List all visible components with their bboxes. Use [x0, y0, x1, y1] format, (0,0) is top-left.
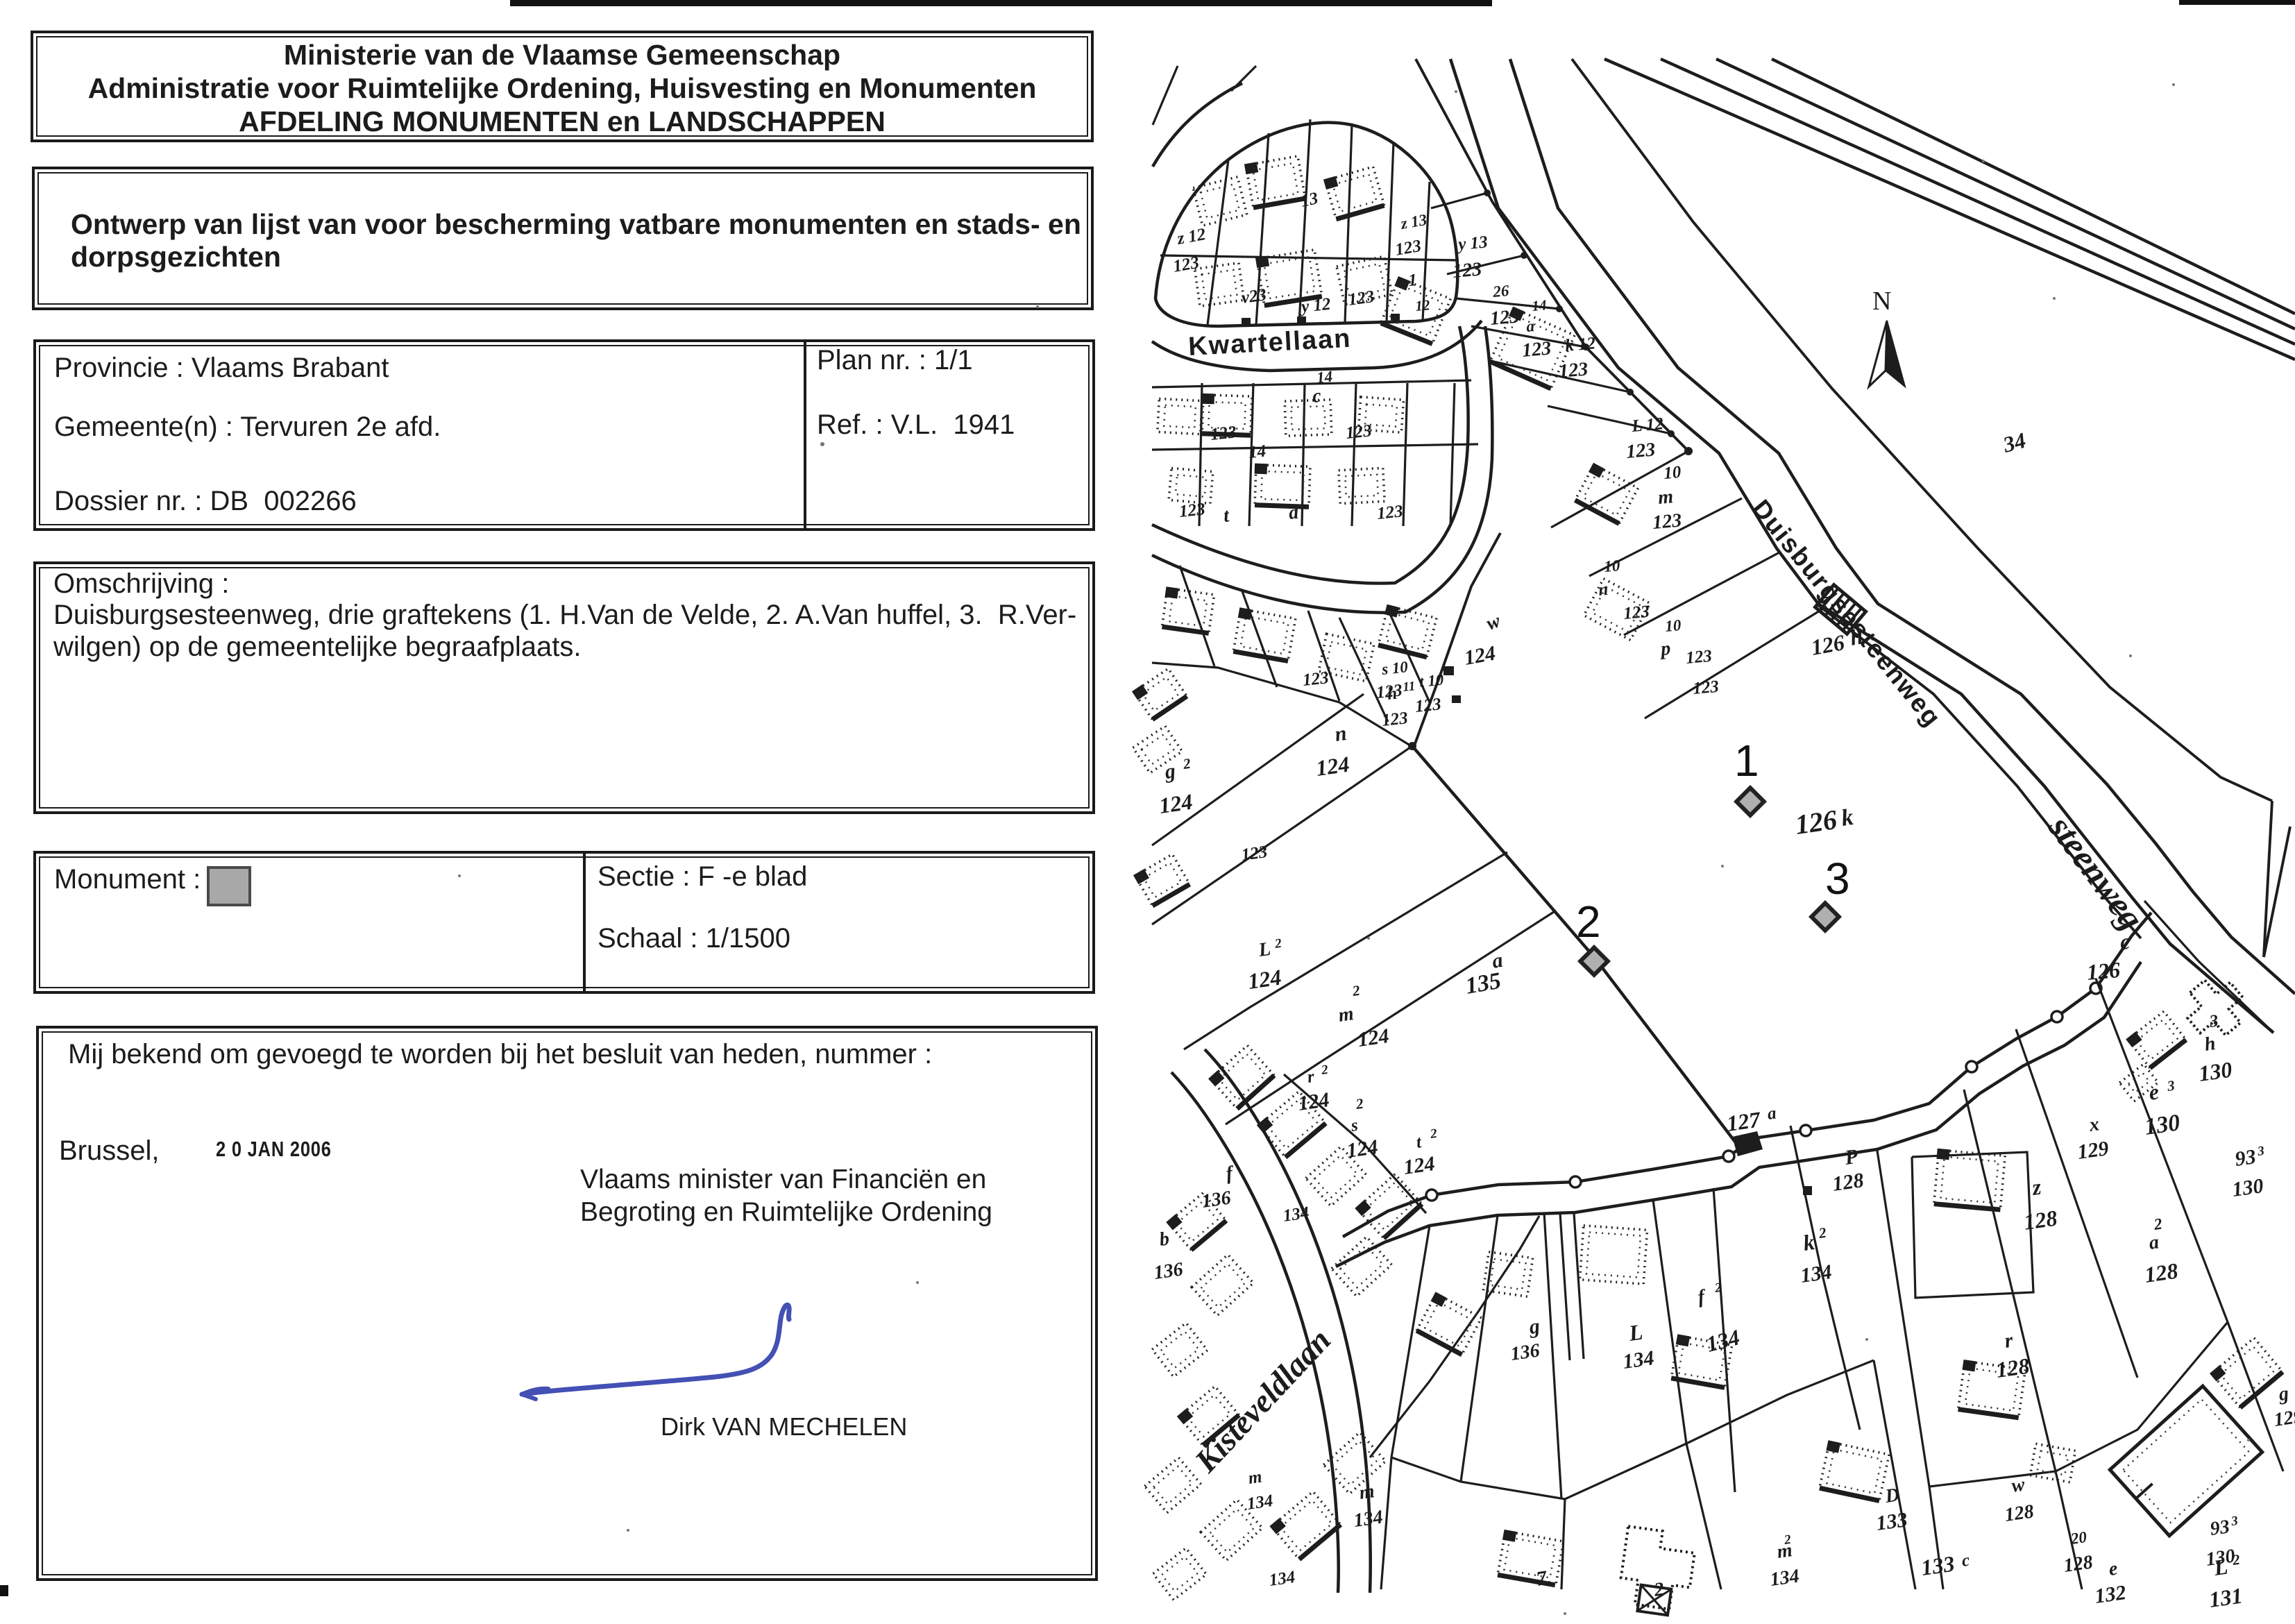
svg-text:26: 26 — [1491, 282, 1510, 301]
svg-text:13: 13 — [1299, 189, 1320, 211]
svg-text:L: L — [1627, 1319, 1644, 1346]
svg-text:h: h — [2203, 1033, 2217, 1056]
svg-text:Kwartellaan: Kwartellaan — [1187, 324, 1352, 362]
svg-text:3: 3 — [2230, 1514, 2239, 1529]
svg-text:x: x — [2087, 1113, 2101, 1136]
svg-text:2: 2 — [1320, 1063, 1330, 1078]
svg-text:128: 128 — [1831, 1169, 1865, 1196]
svg-text:p: p — [1659, 638, 1672, 660]
svg-text:2: 2 — [1817, 1224, 1827, 1242]
svg-text:m: m — [1247, 1467, 1263, 1487]
svg-text:s 10: s 10 — [1380, 658, 1409, 678]
svg-text:123: 123 — [1394, 237, 1423, 260]
svg-text:w: w — [1484, 610, 1503, 635]
svg-text:123: 123 — [1178, 500, 1206, 521]
svg-text:e: e — [2108, 1558, 2119, 1580]
svg-text:123: 123 — [1302, 668, 1330, 690]
svg-text:136: 136 — [1509, 1339, 1541, 1365]
svg-text:14: 14 — [1248, 442, 1267, 462]
svg-text:t: t — [1415, 1133, 1423, 1152]
svg-text:7.: 7. — [1534, 1566, 1553, 1591]
svg-text:a: a — [1525, 317, 1535, 335]
svg-text:134: 134 — [1268, 1568, 1296, 1590]
svg-text:131: 131 — [2208, 1583, 2244, 1612]
svg-text:124: 124 — [1462, 642, 1497, 670]
svg-text:g: g — [1527, 1314, 1541, 1339]
svg-text:129: 129 — [2076, 1137, 2110, 1164]
svg-text:128: 128 — [2143, 1258, 2180, 1287]
svg-text:123: 123 — [1489, 305, 1521, 330]
svg-text:128: 128 — [2004, 1500, 2035, 1526]
svg-text:132: 132 — [2093, 1581, 2127, 1608]
svg-text:v23: v23 — [1240, 285, 1268, 307]
svg-text:133: 133 — [1874, 1508, 1908, 1535]
svg-text:k: k — [1840, 804, 1855, 831]
svg-text:steenweg: steenweg — [2040, 809, 2151, 938]
svg-text:c: c — [2119, 929, 2131, 954]
svg-text:2: 2 — [1273, 936, 1283, 951]
svg-text:f: f — [1697, 1286, 1708, 1308]
svg-text:123: 123 — [1381, 709, 1409, 730]
svg-text:128: 128 — [1995, 1353, 2031, 1382]
svg-text:g: g — [2277, 1382, 2290, 1405]
svg-text:93: 93 — [2233, 1145, 2257, 1171]
svg-text:w: w — [2010, 1474, 2026, 1497]
svg-text:129: 129 — [2273, 1405, 2295, 1431]
svg-text:124: 124 — [1356, 1024, 1390, 1051]
svg-text:2: 2 — [1350, 982, 1361, 999]
svg-text:124: 124 — [1402, 1152, 1436, 1179]
svg-text:123: 123 — [1376, 502, 1404, 523]
svg-text:t: t — [1222, 505, 1230, 527]
svg-text:n: n — [1333, 722, 1348, 746]
svg-text:136: 136 — [1153, 1258, 1185, 1284]
svg-text:134: 134 — [1246, 1491, 1274, 1514]
svg-text:2: 2 — [1713, 1280, 1723, 1296]
svg-text:L 12: L 12 — [1630, 414, 1664, 436]
svg-text:2: 2 — [1576, 897, 1601, 947]
svg-text:P: P — [1843, 1145, 1859, 1169]
svg-text:3: 3 — [1825, 854, 1850, 904]
svg-text:y 12: y 12 — [1298, 295, 1332, 317]
svg-text:L: L — [1257, 938, 1272, 961]
svg-text:2: 2 — [1429, 1126, 1439, 1142]
svg-text:123: 123 — [1623, 602, 1650, 623]
svg-text:134: 134 — [1282, 1203, 1310, 1226]
svg-text:126: 126 — [2085, 957, 2121, 985]
svg-text:c: c — [1311, 385, 1322, 407]
svg-text:2: 2 — [1181, 755, 1192, 772]
svg-text:1: 1 — [1734, 736, 1759, 786]
svg-text:2: 2 — [1354, 1095, 1364, 1113]
svg-text:10: 10 — [1664, 616, 1682, 635]
svg-text:127: 127 — [1725, 1106, 1763, 1136]
svg-text:Kisteveldlaan: Kisteveldlaan — [1187, 1322, 1338, 1480]
svg-text:130: 130 — [2197, 1057, 2234, 1086]
svg-text:20: 20 — [2069, 1528, 2088, 1548]
svg-text:12: 12 — [1414, 296, 1431, 314]
svg-text:123: 123 — [1171, 253, 1201, 276]
svg-text:126: 126 — [1793, 804, 1839, 840]
svg-text:D: D — [1883, 1484, 1901, 1507]
svg-text:130: 130 — [2230, 1174, 2264, 1201]
svg-text:3: 3 — [2165, 1077, 2176, 1094]
svg-text:2: 2 — [1652, 1578, 1666, 1601]
svg-text:t 10: t 10 — [1419, 670, 1445, 691]
svg-text:c: c — [1961, 1551, 1971, 1571]
svg-text:128: 128 — [2022, 1206, 2059, 1235]
svg-text:a: a — [1766, 1103, 1777, 1123]
svg-text:r: r — [1306, 1067, 1316, 1087]
svg-text:123: 123 — [1558, 358, 1589, 382]
svg-text:123: 123 — [1652, 509, 1683, 534]
svg-text:123: 123 — [1521, 337, 1552, 362]
svg-text:93: 93 — [2209, 1516, 2231, 1540]
svg-text:124: 124 — [1296, 1088, 1330, 1115]
svg-text:136: 136 — [1201, 1187, 1233, 1212]
svg-text:z 13: z 13 — [1399, 211, 1428, 232]
svg-text:N: N — [1872, 287, 1891, 316]
svg-text:123: 123 — [1240, 843, 1269, 865]
svg-text:a: a — [2148, 1231, 2160, 1254]
svg-text:134: 134 — [1799, 1260, 1833, 1287]
svg-text:14: 14 — [1531, 296, 1547, 314]
svg-text:z: z — [2030, 1174, 2043, 1200]
svg-text:k 12: k 12 — [1564, 334, 1596, 355]
svg-text:n: n — [1598, 580, 1609, 600]
svg-text:123: 123 — [1685, 647, 1713, 668]
svg-text:124: 124 — [1246, 965, 1283, 994]
svg-text:134: 134 — [1769, 1565, 1801, 1591]
svg-text:134: 134 — [1621, 1346, 1655, 1373]
svg-text:m: m — [1657, 486, 1674, 509]
svg-text:130: 130 — [2143, 1110, 2182, 1140]
svg-text:11: 11 — [1402, 679, 1416, 695]
svg-text:e: e — [2147, 1079, 2160, 1105]
svg-text:10: 10 — [1663, 463, 1682, 483]
svg-text:z 12: z 12 — [1175, 225, 1207, 248]
svg-text:10: 10 — [1603, 557, 1621, 575]
svg-text:123: 123 — [1625, 439, 1657, 463]
svg-text:128: 128 — [2063, 1551, 2094, 1577]
svg-text:124: 124 — [1314, 752, 1351, 781]
svg-text:124: 124 — [1345, 1135, 1379, 1162]
svg-text:123: 123 — [1210, 423, 1237, 444]
svg-text:g: g — [1162, 759, 1176, 784]
svg-text:126: 126 — [1809, 629, 1847, 660]
svg-text:123: 123 — [1347, 287, 1375, 310]
svg-text:134: 134 — [1704, 1324, 1742, 1357]
svg-text:m: m — [1337, 1003, 1355, 1026]
svg-text:h: h — [1387, 684, 1398, 704]
svg-text:b: b — [1158, 1228, 1171, 1251]
svg-text:3: 3 — [2208, 1011, 2219, 1031]
svg-text:123: 123 — [1345, 421, 1373, 443]
svg-text:r: r — [2003, 1329, 2014, 1353]
svg-text:123: 123 — [1692, 677, 1720, 698]
svg-text:34: 34 — [2000, 428, 2029, 457]
svg-text:2: 2 — [2152, 1215, 2163, 1233]
svg-text:135: 135 — [1464, 968, 1503, 999]
svg-text:134: 134 — [1353, 1506, 1384, 1532]
svg-text:f: f — [1225, 1162, 1236, 1185]
svg-text:3: 3 — [2256, 1144, 2265, 1159]
svg-text:124: 124 — [1158, 789, 1194, 818]
svg-text:14: 14 — [1316, 368, 1333, 387]
svg-text:133: 133 — [1920, 1551, 1956, 1580]
svg-text:123: 123 — [1452, 258, 1483, 282]
svg-text:1: 1 — [1407, 271, 1418, 290]
svg-text:m: m — [1358, 1480, 1376, 1504]
svg-text:y 13: y 13 — [1455, 232, 1489, 254]
svg-text:123: 123 — [1414, 695, 1442, 716]
